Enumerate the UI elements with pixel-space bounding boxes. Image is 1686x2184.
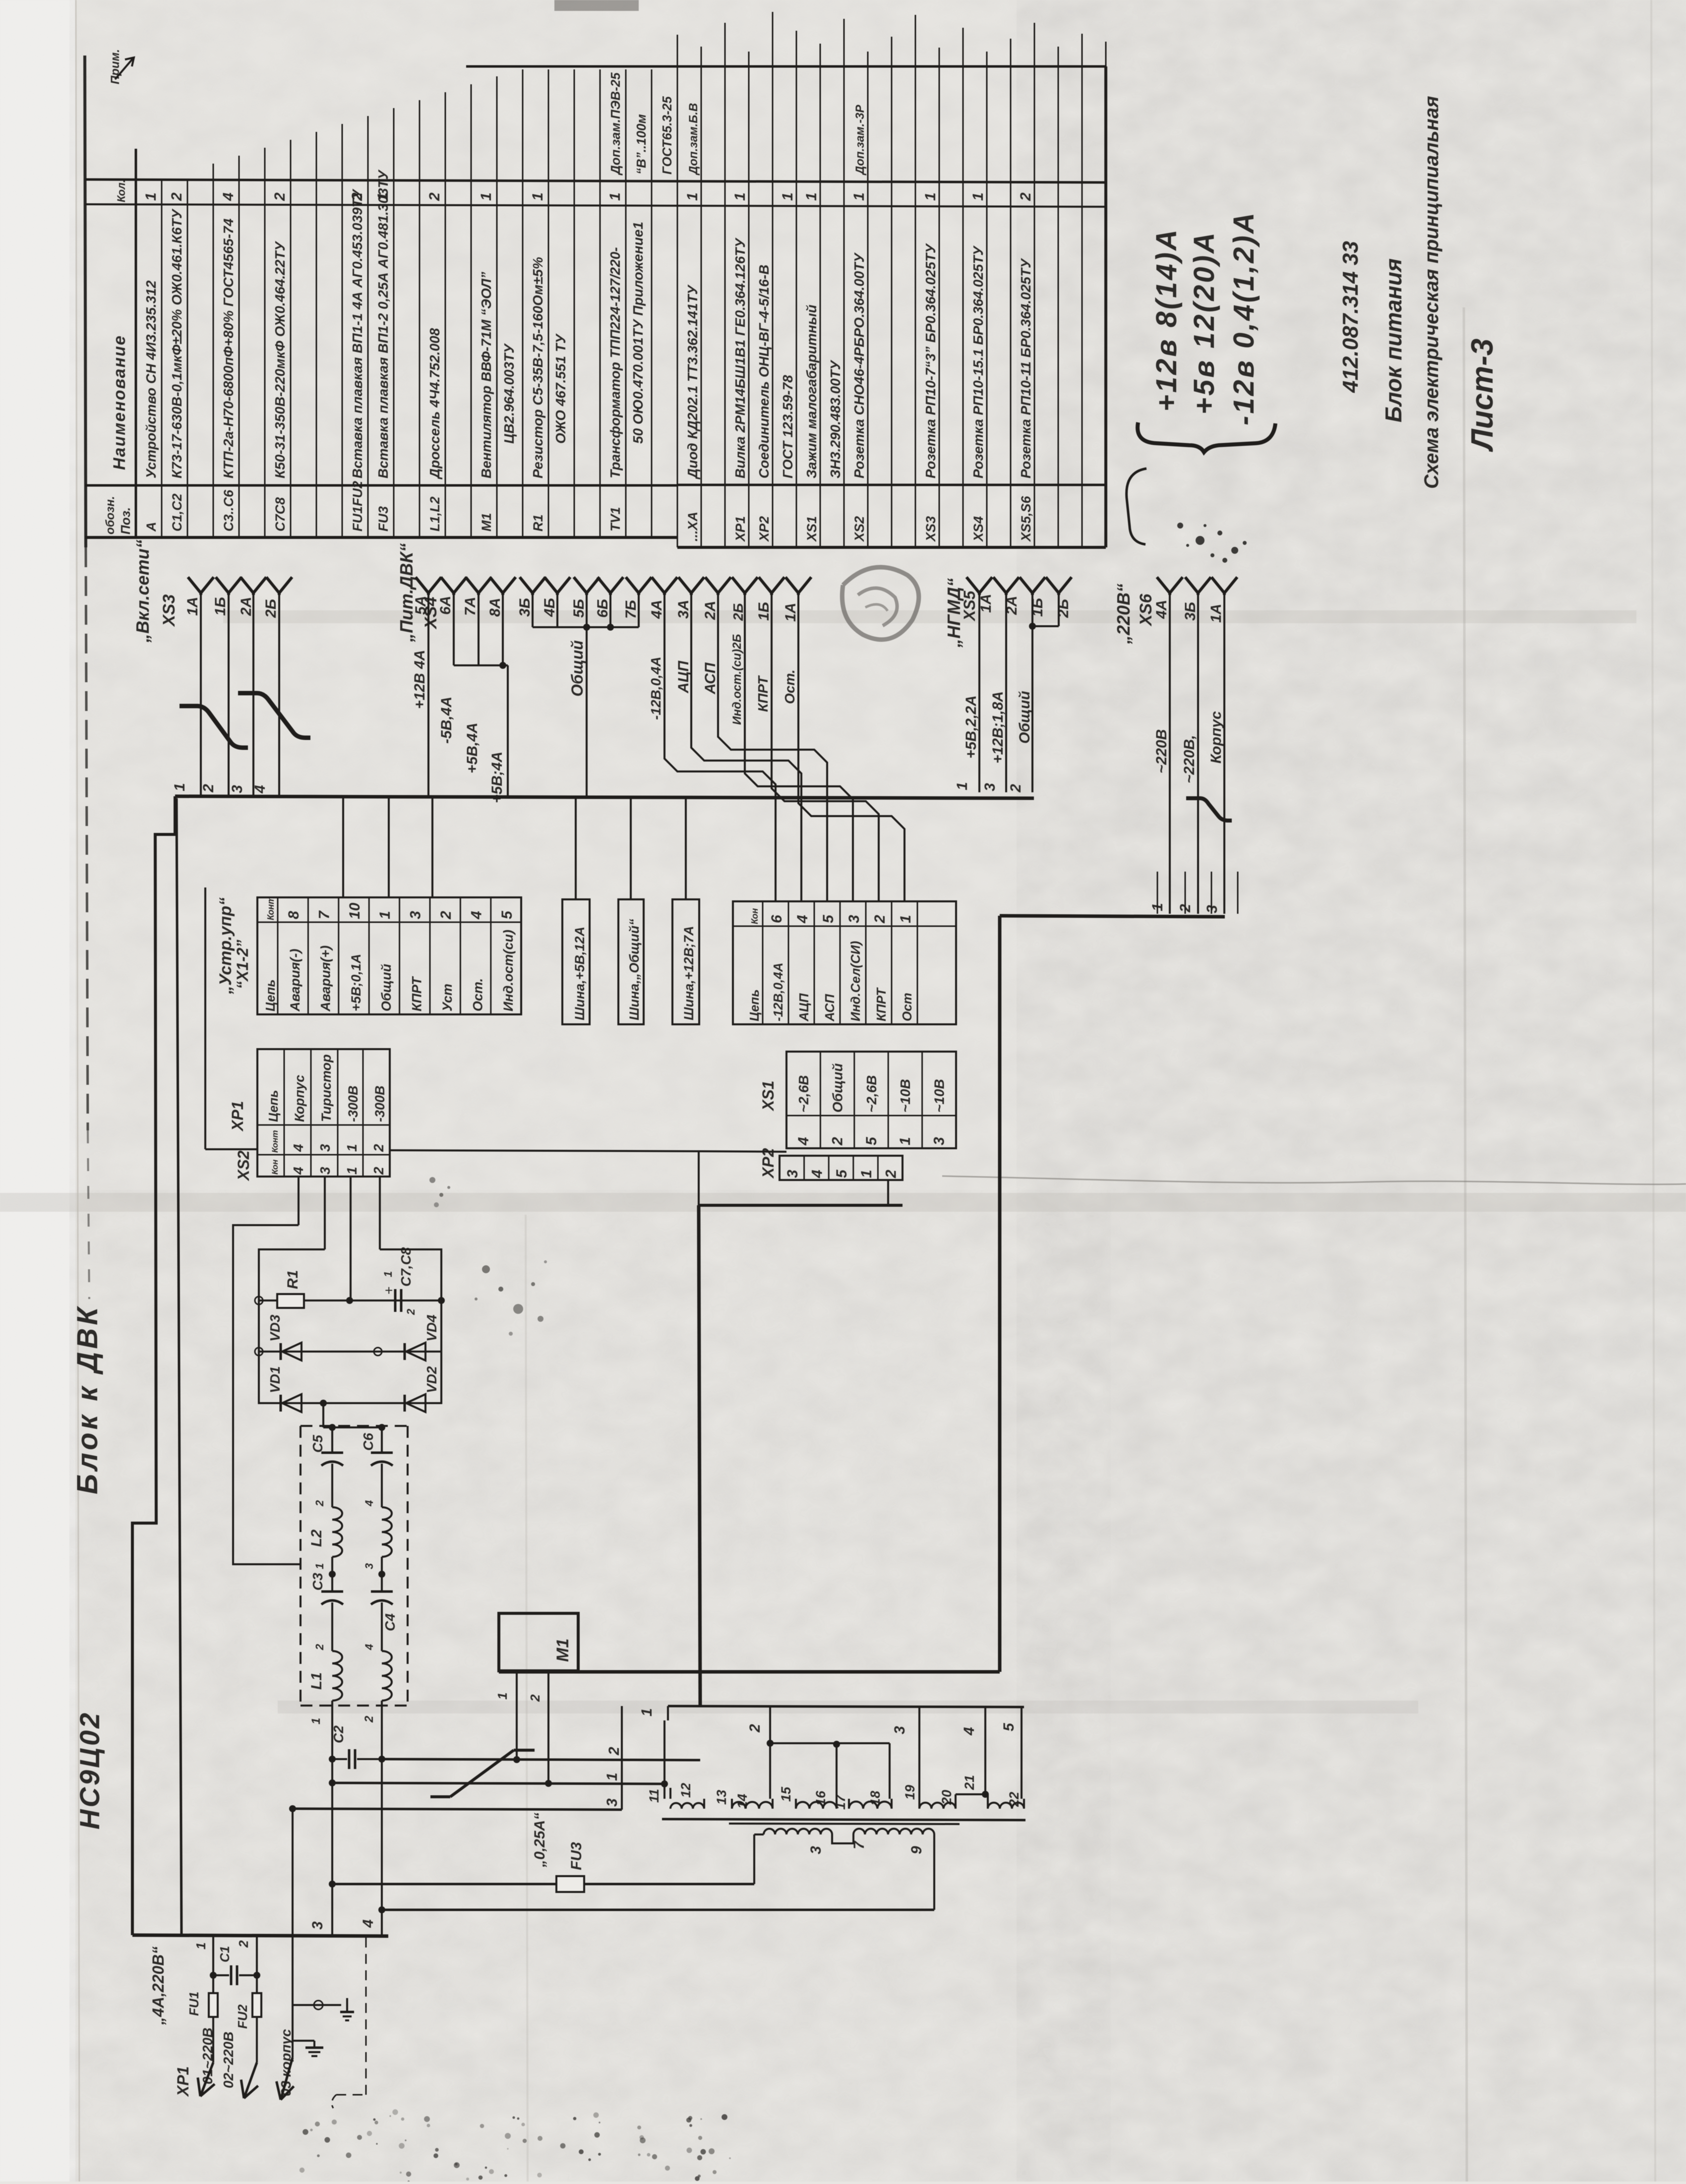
svg-text:2: 2: [200, 784, 217, 793]
svg-text:Ост.: Ост.: [470, 978, 485, 1011]
svg-text:ТV1: ТV1: [608, 507, 623, 531]
svg-text:2: 2: [313, 1500, 326, 1507]
svg-text:Шина,+12В;7А: Шина,+12В;7А: [681, 926, 696, 1020]
svg-text:~2,6В: ~2,6В: [796, 1075, 811, 1113]
svg-text:-300В: -300В: [372, 1085, 387, 1122]
svg-text:4: 4: [794, 915, 811, 924]
svg-text:2А: 2А: [238, 597, 254, 616]
svg-text:„Пит.ДВК“: „Пит.ДВК“: [396, 543, 417, 643]
svg-text:1: 1: [309, 1718, 323, 1724]
svg-text:ХS1: ХS1: [804, 516, 819, 542]
svg-text:4: 4: [291, 1167, 306, 1175]
svg-text:Шина,„Общий“: Шина,„Общий“: [627, 919, 642, 1020]
svg-text:С2: С2: [331, 1725, 346, 1743]
svg-text:3: 3: [408, 911, 424, 919]
svg-text:1А: 1А: [783, 603, 799, 622]
svg-text:5: 5: [820, 914, 837, 923]
svg-text:1: 1: [922, 192, 939, 201]
svg-text:АЦП: АЦП: [796, 993, 811, 1022]
svg-text:Корпус: Корпус: [1208, 711, 1224, 764]
svg-text:3: 3: [784, 1170, 801, 1178]
svg-text:НС9Ц02: НС9Ц02: [74, 1711, 105, 1830]
svg-text:2: 2: [747, 1724, 763, 1733]
svg-text:1Б: 1Б: [756, 602, 772, 621]
svg-text:1: 1: [478, 192, 494, 201]
svg-text:3: 3: [931, 1137, 948, 1145]
svg-text:Кон: Кон: [750, 908, 760, 924]
svg-text:ХS3: ХS3: [923, 516, 938, 542]
svg-text:-300В: -300В: [346, 1085, 361, 1122]
svg-text:Цепь: Цепь: [747, 989, 762, 1021]
svg-text:L1: L1: [308, 1672, 325, 1690]
svg-text:Розетка РП10-11 БР0.364.025ТУ: Розетка РП10-11 БР0.364.025ТУ: [1018, 258, 1033, 478]
svg-text:4: 4: [363, 1644, 375, 1651]
svg-text:КПРТ: КПРТ: [874, 987, 889, 1021]
svg-text:VD3: VD3: [267, 1314, 283, 1342]
svg-text:4: 4: [961, 1727, 977, 1736]
svg-text:Инд.Сел(СИ): Инд.Сел(СИ): [848, 941, 863, 1021]
svg-text:1: 1: [732, 192, 748, 201]
svg-text:Дроссель 4Ч4.752.008: Дроссель 4Ч4.752.008: [427, 328, 442, 479]
svg-text:Авария(+): Авария(+): [318, 945, 333, 1012]
svg-text:С7,С8: С7,С8: [398, 1247, 414, 1287]
svg-text:1: 1: [375, 192, 391, 201]
svg-text:Трансформатор ТПП224-127/220-: Трансформатор ТПП224-127/220-: [607, 247, 623, 478]
svg-text:-12в 0,4(1,2)А: -12в 0,4(1,2)А: [1228, 211, 1260, 425]
svg-text:С4: С4: [382, 1613, 398, 1631]
svg-text:Общий: Общий: [379, 964, 394, 1011]
svg-text:Инд.ост.(си)2Б: Инд.ост.(си)2Б: [730, 634, 744, 725]
svg-text:~10В: ~10В: [898, 1079, 913, 1113]
svg-text:-12В,0,4А: -12В,0,4А: [771, 963, 785, 1022]
svg-text:Ост: Ост: [900, 993, 914, 1021]
svg-text:С1: С1: [217, 1946, 232, 1962]
svg-text:3А: 3А: [675, 600, 692, 619]
svg-text:Доп.зам.ПЭВ-25: Доп.зам.ПЭВ-25: [608, 72, 623, 176]
svg-text:2Б: 2Б: [1055, 599, 1072, 618]
svg-text:FU3: FU3: [568, 1842, 585, 1870]
svg-text:2: 2: [528, 1694, 542, 1702]
svg-text:1: 1: [639, 1708, 655, 1716]
svg-text:1: 1: [382, 1271, 394, 1277]
svg-text:Общий: Общий: [1017, 691, 1033, 744]
svg-text:Соединитель ОНЦ-ВГ-4-5/16-В: Соединитель ОНЦ-ВГ-4-5/16-В: [756, 265, 772, 478]
svg-text:4: 4: [363, 1500, 375, 1507]
svg-text:21: 21: [962, 1775, 977, 1790]
svg-text:L1,L2: L1,L2: [427, 496, 442, 531]
svg-text:Розетка РП10-7“3” БР0.364.025Т: Розетка РП10-7“3” БР0.364.025ТУ: [923, 243, 938, 478]
svg-text:Устройство СН 4И3.235.312: Устройство СН 4И3.235.312: [143, 280, 159, 478]
svg-text:10: 10: [347, 902, 363, 919]
svg-text:6Б: 6Б: [595, 599, 611, 618]
svg-text:3: 3: [1204, 905, 1220, 913]
svg-text:8А: 8А: [487, 598, 503, 617]
svg-text:VD2: VD2: [424, 1366, 439, 1393]
svg-text:Тиристор: Тиристор: [319, 1054, 334, 1122]
svg-text:ХS5: ХS5: [961, 590, 978, 622]
svg-text:Блок питания: Блок питания: [1381, 258, 1406, 422]
svg-text:Конт: Конт: [270, 1130, 280, 1153]
svg-text:4: 4: [360, 1919, 376, 1928]
svg-text:17: 17: [833, 1794, 848, 1810]
svg-text:ХS2: ХS2: [852, 516, 867, 542]
svg-text:4А: 4А: [649, 600, 665, 619]
svg-text:4: 4: [809, 1170, 826, 1179]
svg-text:13: 13: [714, 1790, 729, 1805]
svg-text:1А: 1А: [184, 597, 201, 616]
svg-text:Доп.зам.Б.В: Доп.зам.Б.В: [687, 103, 700, 176]
svg-text:К50-31-350В-220мкФ ОЖ0.464.22: К50-31-350В-220мкФ ОЖ0.464.22ТУ: [272, 241, 288, 478]
svg-text:Кол.: Кол.: [115, 179, 127, 202]
svg-text:2: 2: [362, 1715, 376, 1723]
svg-text:„0,25А“: „0,25А“: [532, 1813, 548, 1868]
svg-text:А: А: [144, 522, 159, 532]
svg-text:2: 2: [349, 192, 365, 201]
svg-text:КПРТ: КПРТ: [755, 675, 771, 712]
svg-text:1: 1: [172, 783, 188, 791]
svg-text:2: 2: [1008, 784, 1024, 793]
svg-text:М1: М1: [553, 1639, 572, 1662]
svg-text:АЦП: АЦП: [675, 660, 692, 694]
svg-text:С1,С2: С1,С2: [170, 493, 184, 531]
svg-text:1: 1: [1149, 903, 1166, 911]
svg-text:2: 2: [313, 1644, 326, 1651]
svg-text:5: 5: [863, 1136, 880, 1145]
svg-text:Схема электрическая принципи: Схема электрическая принципиальная: [1421, 96, 1443, 489]
svg-text:2: 2: [1018, 192, 1034, 201]
svg-text:+5в 12(20)А: +5в 12(20)А: [1188, 231, 1220, 414]
svg-text:VD4: VD4: [424, 1314, 439, 1342]
svg-text:С3: С3: [310, 1573, 325, 1591]
svg-text:„Устр.упр“: „Устр.упр“: [216, 897, 235, 995]
svg-text:ГОСТ65.3-25: ГОСТ65.3-25: [660, 96, 674, 175]
svg-text:1: 1: [604, 1772, 620, 1781]
svg-text:4: 4: [252, 785, 268, 794]
svg-text:2Б: 2Б: [263, 599, 279, 618]
svg-text:ЦВ2.964.003ТУ: ЦВ2.964.003ТУ: [501, 343, 517, 444]
svg-text:FU2: FU2: [235, 2004, 250, 2029]
svg-text:1: 1: [193, 1943, 208, 1949]
svg-text:4: 4: [220, 192, 237, 201]
svg-text:3: 3: [317, 1144, 333, 1152]
svg-text:20: 20: [939, 1790, 954, 1805]
svg-text:R1: R1: [531, 514, 545, 531]
svg-text:2: 2: [371, 1167, 386, 1175]
svg-text:АСП: АСП: [702, 662, 719, 695]
svg-text:2Б: 2Б: [730, 603, 746, 621]
svg-text:Общий: Общий: [830, 1063, 845, 1113]
svg-text:12: 12: [678, 1783, 693, 1798]
svg-text:...ХА: ...ХА: [685, 512, 700, 541]
svg-text:5: 5: [499, 910, 515, 919]
svg-text:ХР2: ХР2: [757, 516, 772, 542]
svg-text:“Х1-2”: “Х1-2”: [234, 940, 251, 989]
svg-text:-12В,0,4А: -12В,0,4А: [648, 656, 663, 720]
svg-text:2: 2: [883, 1170, 899, 1179]
svg-text:Конт: Конт: [266, 896, 276, 920]
svg-text:2: 2: [606, 1747, 622, 1756]
svg-text:4: 4: [795, 1137, 812, 1146]
svg-text:9: 9: [908, 1846, 925, 1854]
svg-text:50 ОЮ0.470.001ТУ Приложение1: 50 ОЮ0.470.001ТУ Приложение1: [630, 222, 646, 444]
svg-text:3: 3: [808, 1846, 824, 1854]
svg-text:Уст: Уст: [440, 984, 455, 1011]
svg-text:R1: R1: [285, 1270, 301, 1289]
svg-text:11: 11: [647, 1789, 662, 1803]
svg-text:+12В;1,8А: +12В;1,8А: [990, 691, 1006, 764]
svg-text:2: 2: [405, 1308, 417, 1315]
svg-text:1: 1: [803, 192, 820, 201]
svg-text:02~220В: 02~220В: [221, 2032, 236, 2088]
svg-text:+: +: [385, 1283, 393, 1298]
svg-text:412.087.314 33: 412.087.314 33: [1338, 241, 1363, 393]
svg-text:Розетка СНО46-4РБРО.364.00ТУ: Розетка СНО46-4РБРО.364.00ТУ: [851, 252, 867, 478]
svg-text:19: 19: [903, 1785, 917, 1800]
svg-text:2: 2: [426, 192, 443, 201]
svg-text:КПРТ: КПРТ: [410, 976, 424, 1011]
svg-text:Диод КД202.1 ТТ3.362.141ТУ: Диод КД202.1 ТТ3.362.141ТУ: [685, 284, 700, 479]
svg-text:2: 2: [169, 192, 185, 201]
svg-text:С3..С6: С3..С6: [221, 489, 236, 531]
svg-text:Авария(-): Авария(-): [288, 949, 302, 1012]
svg-text:„220В“: „220В“: [1113, 584, 1134, 645]
svg-text:ХР2: ХР2: [759, 1148, 777, 1179]
svg-text:3Б: 3Б: [517, 598, 533, 617]
svg-text:1: 1: [344, 1144, 360, 1152]
svg-text:ГОСТ 123.59-78: ГОСТ 123.59-78: [780, 375, 795, 478]
svg-text:С7С8: С7С8: [273, 497, 288, 531]
svg-text:Поз.: Поз.: [118, 507, 133, 534]
svg-text:2: 2: [1177, 904, 1194, 913]
svg-text:7Б: 7Б: [623, 600, 639, 619]
svg-text:С6: С6: [361, 1433, 376, 1451]
svg-text:22: 22: [1007, 1792, 1022, 1807]
svg-text:2: 2: [829, 1137, 845, 1146]
svg-text:2: 2: [371, 1144, 386, 1152]
svg-text:4: 4: [468, 911, 484, 920]
svg-text:2: 2: [438, 911, 454, 920]
svg-text:ХS5,S6: ХS5,S6: [1019, 495, 1033, 542]
svg-text:ХS2: ХS2: [235, 1150, 252, 1181]
svg-text:FU1: FU1: [186, 1992, 201, 2016]
svg-text:3: 3: [846, 915, 862, 923]
svg-text:7А: 7А: [462, 597, 479, 616]
svg-text:VD1: VD1: [267, 1366, 283, 1393]
svg-text:1: 1: [780, 192, 796, 201]
svg-text:1: 1: [954, 782, 970, 790]
svg-text:Доп.зам.-3Р: Доп.зам.-3Р: [853, 104, 867, 176]
svg-text:1: 1: [858, 1170, 875, 1178]
svg-text:ХР1: ХР1: [733, 516, 748, 542]
svg-text:15: 15: [779, 1786, 793, 1802]
svg-text:L2: L2: [308, 1530, 325, 1547]
svg-text:КТП-2а-Н70-6800пФ+80% ГОСТ4565: КТП-2а-Н70-6800пФ+80% ГОСТ4565-74: [221, 218, 236, 478]
svg-text:Вставка плавкая ВП1-1 4А АГ0.4: Вставка плавкая ВП1-1 4А АГ0.453.039ТУ: [350, 188, 365, 478]
svg-text:14: 14: [735, 1794, 750, 1809]
svg-text:5А: 5А: [413, 596, 429, 615]
svg-text:+12В 4А: +12В 4А: [412, 650, 428, 709]
svg-text:Общий: Общий: [568, 640, 586, 697]
svg-text:1: 1: [897, 1137, 913, 1145]
svg-text:Инд.ост(си): Инд.ост(си): [501, 930, 516, 1011]
svg-text:6А: 6А: [437, 596, 454, 615]
svg-text:+5В,2,2А: +5В,2,2А: [963, 695, 979, 759]
svg-text:ХS3: ХS3: [160, 594, 179, 627]
svg-text:“В”..100м: “В”..100м: [634, 114, 649, 175]
svg-text:Лист-3: Лист-3: [1465, 339, 1500, 452]
svg-text:3: 3: [982, 783, 998, 791]
svg-text:4: 4: [291, 1144, 306, 1152]
svg-text:ХS6: ХS6: [1137, 593, 1155, 627]
svg-text:Зажим малогабаритный: Зажим малогабаритный: [804, 304, 819, 478]
svg-text:FU3: FU3: [376, 506, 391, 531]
svg-text:Кон: Кон: [270, 1160, 280, 1175]
svg-text:01~220В: 01~220В: [200, 2028, 215, 2084]
svg-text:+12в 8(14)А: +12в 8(14)А: [1150, 228, 1183, 412]
svg-text:~10В: ~10В: [932, 1079, 947, 1113]
svg-text:ХР1: ХР1: [174, 2066, 192, 2097]
svg-text:1: 1: [851, 192, 867, 201]
svg-text:3: 3: [317, 1167, 333, 1175]
svg-text:ЗН3.290.483.00ТУ: ЗН3.290.483.00ТУ: [828, 359, 843, 478]
svg-text:АСП: АСП: [822, 994, 837, 1022]
svg-text:3: 3: [229, 785, 245, 793]
svg-text:Цепь: Цепь: [263, 979, 278, 1011]
svg-text:2А: 2А: [702, 601, 719, 620]
svg-text:ХS4: ХS4: [971, 516, 986, 542]
svg-text:~220В,: ~220В,: [1181, 735, 1198, 783]
svg-text:„4А,220В“: „4А,220В“: [149, 1947, 167, 2025]
svg-text:ХР1: ХР1: [229, 1101, 246, 1132]
svg-text:4А: 4А: [1153, 600, 1170, 619]
svg-text:FU1FU2: FU1FU2: [350, 481, 365, 531]
svg-text:~220В: ~220В: [1153, 729, 1170, 773]
svg-text:К73-17-630В-0,1мкФ±20% ОЖ0.461: К73-17-630В-0,1мкФ±20% ОЖ0.461.К6ТУ: [169, 208, 184, 478]
svg-text:1: 1: [344, 1167, 360, 1175]
svg-text:3Б: 3Б: [1182, 602, 1199, 621]
svg-text:5: 5: [1001, 1722, 1017, 1731]
svg-text:Блок к ДВК: Блок к ДВК: [71, 1304, 104, 1494]
svg-text:ОЖО 467.551 ТУ: ОЖО 467.551 ТУ: [553, 333, 568, 444]
svg-text:8: 8: [286, 911, 302, 919]
svg-text:„Вкл.сети“: „Вкл.сети“: [132, 539, 153, 643]
svg-text:1: 1: [377, 911, 393, 919]
svg-text:2: 2: [272, 192, 288, 201]
svg-text:Цепь: Цепь: [266, 1090, 281, 1122]
svg-text:1: 1: [143, 192, 159, 201]
svg-text:Шина,+5В,12А: Шина,+5В,12А: [572, 927, 587, 1020]
svg-text:1: 1: [898, 915, 914, 923]
svg-text:+5В;0,1А: +5В;0,1А: [349, 954, 363, 1011]
svg-text:Вентилятор ВВФ-71М “ЭОЛ”: Вентилятор ВВФ-71М “ЭОЛ”: [479, 272, 494, 478]
svg-text:М1: М1: [479, 513, 494, 531]
svg-text:Корпус: Корпус: [292, 1075, 307, 1122]
svg-text:1: 1: [495, 1693, 510, 1700]
svg-text:Ост.: Ост.: [782, 669, 797, 704]
svg-text:2: 2: [236, 1940, 251, 1948]
svg-text:3: 3: [363, 1563, 375, 1569]
svg-text:С5: С5: [310, 1435, 325, 1453]
svg-text:16: 16: [813, 1790, 828, 1806]
svg-text:Розетка РП10-15.1 БР0.364.025Т: Розетка РП10-15.1 БР0.364.025ТУ: [970, 245, 986, 478]
svg-text:5: 5: [834, 1169, 850, 1178]
svg-text:7: 7: [316, 910, 332, 919]
svg-text:+5В,4А: +5В,4А: [464, 722, 481, 773]
svg-text:1: 1: [530, 192, 546, 201]
svg-text:18: 18: [868, 1791, 883, 1806]
svg-text:обозн.: обозн.: [104, 496, 117, 534]
svg-text:3: 3: [309, 1921, 326, 1930]
svg-text:~2,6В: ~2,6В: [864, 1075, 879, 1113]
svg-text:1: 1: [313, 1563, 326, 1569]
svg-text:1А: 1А: [1208, 604, 1224, 623]
svg-text:Наименование: Наименование: [110, 335, 129, 470]
svg-text:1: 1: [970, 192, 986, 201]
svg-text:1: 1: [607, 192, 623, 201]
svg-text:1: 1: [684, 192, 701, 201]
svg-text:Вставка плавкая ВП1-2 0,25А АГ: Вставка плавкая ВП1-2 0,25А АГ0.481.303Т…: [375, 169, 391, 478]
svg-text:1Б: 1Б: [212, 597, 229, 616]
svg-text:3: 3: [604, 1798, 620, 1807]
svg-text:6: 6: [769, 915, 785, 923]
svg-text:-5В,4А: -5В,4А: [438, 697, 455, 744]
svg-text:03 корпус: 03 корпус: [278, 2029, 294, 2096]
svg-text:Вилка 2РМ14БШ1В1 ГЕ0.364.126ТУ: Вилка 2РМ14БШ1В1 ГЕ0.364.126ТУ: [732, 237, 748, 478]
svg-text:ХS1: ХS1: [759, 1081, 777, 1112]
svg-text:3: 3: [892, 1726, 908, 1734]
svg-text:5Б: 5Б: [571, 599, 587, 618]
svg-text:4Б: 4Б: [542, 598, 558, 617]
svg-text:7: 7: [851, 1840, 867, 1849]
svg-text:2: 2: [872, 915, 888, 924]
svg-text:Резистор С5-35В-7,5-160Ом±5%: Резистор С5-35В-7,5-160Ом±5%: [530, 257, 545, 478]
